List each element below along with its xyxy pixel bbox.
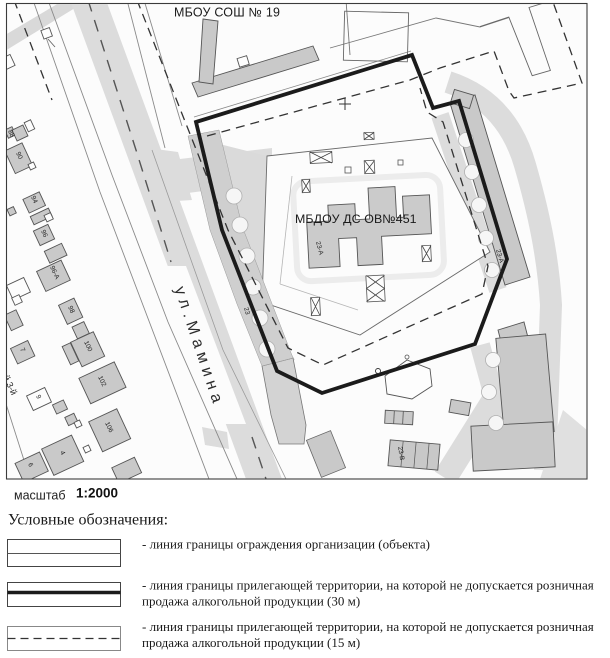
svg-text:продажа алкогольной продукции: продажа алкогольной продукции (30 м) [142,594,360,609]
svg-text:- линия границы прилегающей те: - линия границы прилегающей территории, … [142,578,594,593]
svg-text:1:2000: 1:2000 [76,486,118,501]
svg-text:МБОУ СОШ № 19: МБОУ СОШ № 19 [174,6,280,20]
svg-text:продажа алкогольной продукции: продажа алкогольной продукции (15 м) [142,635,360,650]
svg-text:масштаб: масштаб [14,489,66,503]
svg-text:- линия границы прилегающей те: - линия границы прилегающей территории, … [142,619,594,634]
svg-text:- линия границы ограждения орг: - линия границы ограждения организации (… [142,537,430,552]
svg-text:МБДОУ ДС ОВ№451: МБДОУ ДС ОВ№451 [295,212,417,226]
svg-text:Условные обозначения:: Условные обозначения: [8,512,168,529]
